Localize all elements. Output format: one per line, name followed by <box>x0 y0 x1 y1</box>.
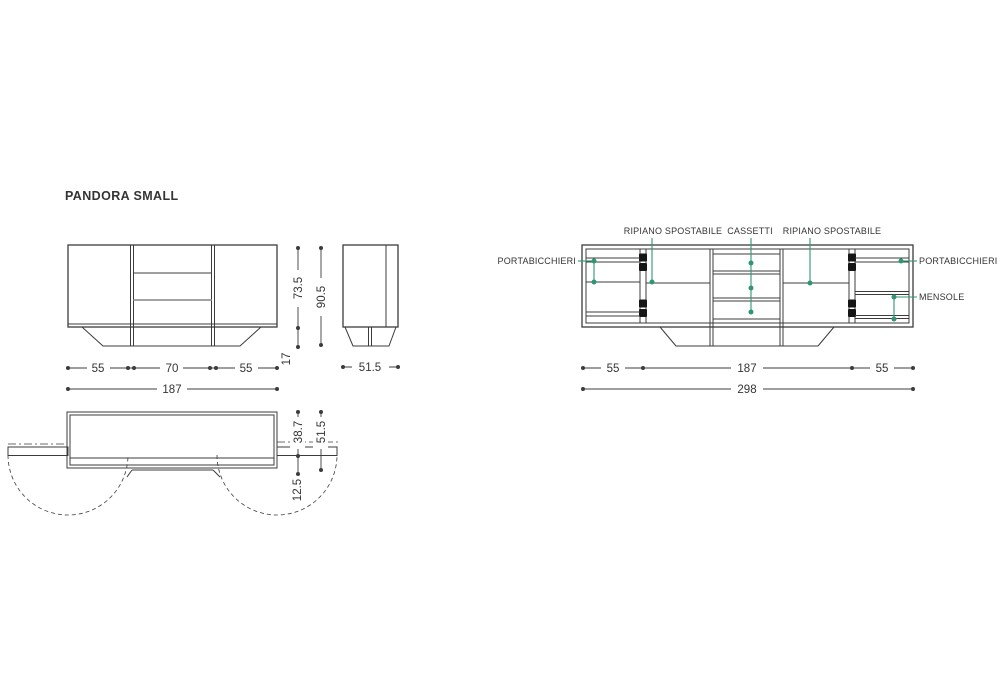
base-pedestal <box>82 327 261 346</box>
label-portabicchieri-right: PORTABICCHIERI <box>919 256 997 266</box>
page-title: PANDORA SMALL <box>65 189 179 203</box>
dim-side-depth: 51.5 <box>341 359 400 374</box>
dim-front-middle: 70 <box>166 363 179 375</box>
dim-interior-total: 298 <box>581 381 915 396</box>
dim-interior-left: 55 <box>607 363 620 375</box>
dim-interior-middle: 187 <box>737 363 756 375</box>
drawer-3 <box>713 301 780 319</box>
marker-dot <box>592 259 597 264</box>
dim-total-height: 90.5 <box>316 286 328 308</box>
swing-arc-left <box>8 455 128 515</box>
marker-dot <box>749 310 754 315</box>
plan-pedestal-edge <box>127 470 220 477</box>
hinge-icon <box>639 254 647 262</box>
drawer-unit <box>710 249 783 346</box>
dim-interior-sections: 55 187 55 <box>581 360 915 375</box>
interior-base-pedestal <box>660 327 834 346</box>
dim-door-clearance: 12.5 <box>292 479 304 501</box>
drawer-2 <box>713 274 780 298</box>
drawer-1 <box>713 254 780 271</box>
label-mensole: MENSOLE <box>919 292 964 302</box>
label-portabicchieri-left: PORTABICCHIERI <box>498 256 576 266</box>
plan-outer-outline <box>67 412 277 468</box>
marker-dot <box>892 317 897 322</box>
front-view: 55 70 55 187 73.5 17 90.5 <box>66 245 328 396</box>
dim-heights: 73.5 17 90.5 <box>281 246 328 365</box>
side-view: 51.5 <box>341 245 400 374</box>
divider-left <box>639 249 647 323</box>
hinge-icon <box>848 263 856 271</box>
dim-interior-right: 55 <box>876 363 889 375</box>
right-compartment <box>855 258 909 319</box>
interior-outer-frame <box>582 245 913 327</box>
side-base-pedestal <box>345 327 396 346</box>
drawing-canvas: PANDORA SMALL 55 <box>0 0 1000 700</box>
marker-dot <box>899 259 904 264</box>
hinge-icon <box>848 254 856 262</box>
interior-view: RIPIANO SPOSTABILE CASSETTI RIPIANO SPOS… <box>498 226 998 396</box>
cabinet-body-outline <box>68 245 277 327</box>
label-cassetti: CASSETTI <box>727 226 773 236</box>
divider-right <box>848 249 856 323</box>
base-divider-lines <box>131 327 215 346</box>
dim-sections: 55 70 55 <box>66 360 279 375</box>
marker-dot <box>892 295 897 300</box>
label-ripiano-right: RIPIANO SPOSTABILE <box>783 226 881 236</box>
technical-drawing-page: PANDORA SMALL 55 <box>0 0 1000 700</box>
hinge-icon <box>848 300 856 308</box>
marker-dot <box>650 280 655 285</box>
door-divider-right <box>212 245 215 327</box>
dim-interior-total-text: 298 <box>737 384 756 396</box>
dim-front-right: 55 <box>240 363 253 375</box>
side-body-outline <box>343 245 398 327</box>
dim-front-left: 55 <box>92 363 105 375</box>
dim-base-height: 17 <box>281 353 293 366</box>
dim-total-depth: 51.5 <box>316 421 328 443</box>
door-divider-left <box>131 245 134 327</box>
hinge-icon <box>848 309 856 317</box>
hinge-icon <box>639 309 647 317</box>
dim-body-depth: 38.7 <box>293 421 305 443</box>
hinge-icon <box>639 300 647 308</box>
dim-side-depth-text: 51.5 <box>359 362 381 374</box>
dim-total-width: 187 <box>66 381 279 396</box>
hinge-icon <box>639 263 647 271</box>
label-ripiano-left: RIPIANO SPOSTABILE <box>624 226 722 236</box>
marker-dot <box>808 281 813 286</box>
top-view: 38.7 12.5 51.5 <box>8 410 338 515</box>
open-door-left <box>8 447 68 456</box>
dim-body-height: 73.5 <box>293 277 305 299</box>
dim-front-width: 187 <box>162 384 181 396</box>
marker-dot <box>749 261 754 266</box>
marker-dot <box>592 280 597 285</box>
marker-dot <box>749 286 754 291</box>
